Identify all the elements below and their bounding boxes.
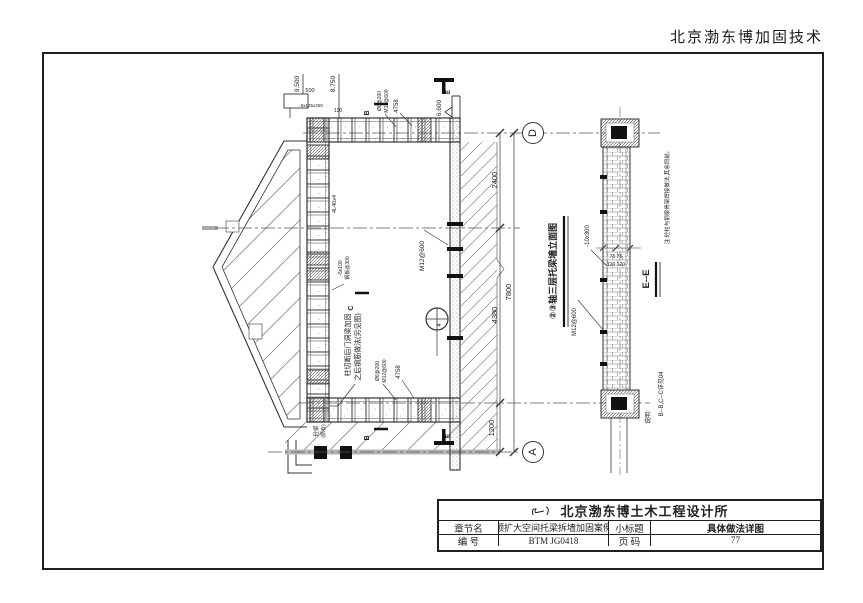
dim-4380: 4380	[490, 307, 499, 324]
number-label: 编 号	[439, 534, 499, 546]
section-mark-b-bottom: B	[364, 435, 371, 440]
dim-7800: 7800	[504, 284, 513, 301]
annotation-line1: 柱切断后门洞梁加固	[343, 314, 352, 377]
title-block-row-2: 编 号 BTM JG0418 页 码 77	[439, 534, 820, 546]
level-9500: 9.500	[294, 75, 301, 92]
label-angle-steel: 4L40x4	[332, 195, 338, 213]
label-bolt-plan: M12@600	[419, 241, 426, 271]
note-label: 说明:	[644, 410, 652, 424]
level-6600: 6.600	[436, 99, 443, 116]
section-side-note: 注:砼柱与钢梁骨架焊接做法,其余同前。	[663, 148, 671, 245]
section-mark-b-top: B	[364, 110, 371, 115]
section-mark-e-top: E	[446, 90, 452, 94]
company-name: 北京渤东博土木工程设计所	[560, 501, 728, 520]
annotation-line2: 之后钢筋做法(另见图)	[353, 313, 362, 381]
subtitle-label: 小标题	[609, 521, 651, 534]
label-plate-mid1: -5x100	[338, 260, 344, 276]
axis-label-d: D	[527, 129, 539, 137]
dim-1200: 1200	[487, 420, 496, 437]
label-length-top: 4758	[394, 99, 400, 113]
company-logo	[530, 505, 554, 517]
chapter-label: 章节名	[439, 521, 499, 534]
label-bolt-section: M12@600	[572, 307, 578, 335]
drawing-sheet: 北京渤东博加固技术	[0, 0, 863, 603]
existing-column-section	[314, 446, 327, 459]
label-existing2: (原有)	[320, 424, 327, 438]
existing-column-section	[340, 446, 352, 459]
label-stud-b2: M12@600	[382, 359, 388, 382]
dim-75-75: 75 75	[610, 254, 623, 260]
label-plate-section: -10x300	[585, 224, 591, 246]
label-length-bottom: 4758	[396, 365, 402, 379]
section-e-e: 75 75 120 120 -10x300 M12@600 E--E 注:砼柱与…	[572, 107, 671, 475]
number-value: BTM JG0418	[499, 534, 609, 546]
label-existing1: 砼梁	[312, 425, 320, 437]
wall-notch	[226, 221, 239, 232]
axis-label-a: A	[527, 448, 539, 456]
dim-2400: 2400	[490, 172, 499, 189]
chapter-value: 顶扩大空间托梁拆墙加固案例	[499, 521, 609, 534]
label-stud-b1: Ø6@200	[375, 361, 381, 381]
section-title: E--E	[641, 270, 652, 289]
page-label: 页 码	[609, 534, 651, 546]
dim-120-120: 120 120	[607, 262, 625, 268]
title-block-row-1: 章节名 顶扩大空间托梁拆墙加固案例 小标题 具体做法详图	[439, 521, 820, 534]
detail-callout: 4	[426, 308, 448, 356]
section-mark-e-bottom: E	[446, 434, 452, 438]
corner-dimensions: 9.500 8.750 500 -5x125x250 130 6.600	[294, 75, 452, 117]
section-mark-c: C	[348, 305, 355, 310]
elevation-title: ②③轴三层托梁墙立面图	[547, 216, 568, 327]
beam-frame	[307, 118, 463, 470]
label-stud-a2: M12@600	[384, 89, 390, 112]
subtitle-value: 具体做法详图	[651, 521, 820, 534]
label-plate-mid2: 钢板@300	[344, 256, 351, 280]
label-stud-a1: Ø6@200	[377, 91, 383, 111]
svg-text:②③轴三层托梁墙立面图: ②③轴三层托梁墙立面图	[547, 223, 558, 319]
title-block-company-row: 北京渤东博土木工程设计所	[439, 501, 820, 521]
page-value: 77	[651, 534, 820, 546]
right-wall	[450, 118, 460, 470]
title-block: 北京渤东博土木工程设计所 章节名 顶扩大空间托梁拆墙加固案例 小标题 具体做法详…	[437, 499, 822, 552]
wall-notch	[249, 324, 262, 339]
label-plate-top: -5x125x250	[299, 103, 323, 108]
dim-130: 130	[334, 108, 343, 114]
note-text: B--B,C--C详见04	[657, 371, 665, 417]
dim-500: 500	[305, 88, 314, 94]
axis-bubbles: D A	[523, 123, 544, 463]
level-8750: 8.750	[330, 75, 337, 92]
